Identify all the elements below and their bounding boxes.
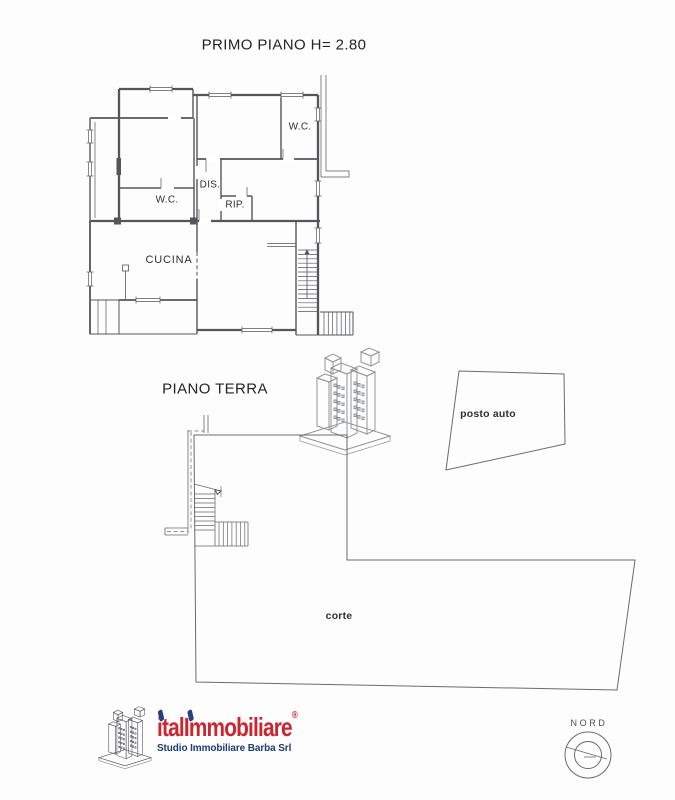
ground-floor-title: PIANO TERRA <box>162 381 268 398</box>
terrace-railing <box>321 75 349 177</box>
posto-auto-outline <box>446 371 565 470</box>
ground-floor-plan <box>165 371 635 690</box>
area-label-posto-auto: posto auto <box>460 408 516 420</box>
compass-dial <box>565 732 611 778</box>
first-floor-title: PRIMO PIANO H= 2.80 <box>202 37 367 54</box>
logo-brand-second: Immobiliare <box>184 712 292 742</box>
compass-label: NORD <box>571 718 608 728</box>
agency-logo: italImmobiliare® Studio Immobiliare Barb… <box>157 714 333 754</box>
room-label-wc-left: W.C. <box>156 195 179 206</box>
room-label-wc-top: W.C. <box>289 122 312 133</box>
windows <box>87 86 322 334</box>
stairs-ground-floor <box>194 484 248 546</box>
room-label-cucina: CUCINA <box>146 254 193 266</box>
registered-mark: ® <box>292 710 298 721</box>
first-floor-plan <box>87 75 354 335</box>
floor-plan-drawing <box>0 0 675 800</box>
logo-brand-text: italImmobiliare® <box>157 714 298 741</box>
area-label-corte: corte <box>326 610 353 622</box>
logo-icon <box>99 707 151 769</box>
logo-subtitle: Studio Immobiliare Barba Srl <box>157 742 324 754</box>
watermark-logo <box>300 348 390 455</box>
room-label-dis: DIS. <box>200 180 221 191</box>
room-label-rip: RIP. <box>225 200 244 211</box>
stairs-first-floor <box>296 221 353 335</box>
